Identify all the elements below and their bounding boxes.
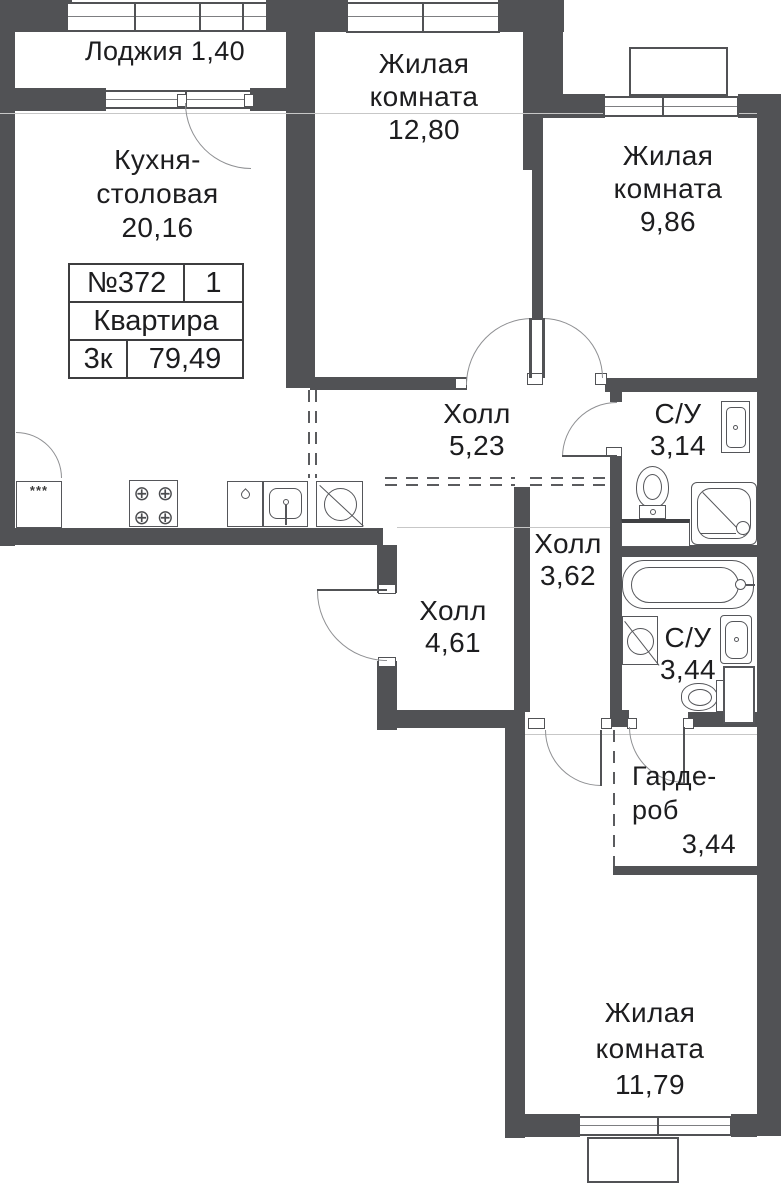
kitchen-sink (263, 481, 308, 527)
burner-icon: ⊕ (157, 481, 174, 505)
toilet-tank (639, 505, 666, 519)
door-arc (317, 591, 387, 661)
room-area: 3,62 (508, 560, 628, 592)
balcony-unit-box (629, 47, 728, 96)
door-arc (543, 318, 603, 378)
room-area: 1,40 (191, 36, 245, 66)
wall (14, 528, 383, 545)
door-arc (562, 402, 617, 457)
apartment-number: №372 (70, 265, 185, 301)
window-mullion (657, 1118, 659, 1134)
toilet (681, 683, 718, 711)
room-name: комната (578, 172, 758, 205)
wall (523, 118, 543, 170)
wall (0, 30, 15, 546)
window-glass-line (605, 106, 737, 107)
room-name: С/У (634, 622, 742, 654)
room-name: Холл (393, 595, 513, 627)
room-name: Гарде- (632, 759, 744, 793)
window (346, 2, 500, 33)
fridge-stars-icon: *** (17, 482, 61, 497)
wall (610, 390, 622, 402)
wall (14, 88, 106, 111)
window-mullion (242, 4, 244, 30)
apartment-rooms-count: 3к (70, 341, 128, 377)
fridge: *** (16, 481, 62, 528)
window-glass-line (580, 1125, 730, 1126)
apartment-info-box: №372 1 Квартира 3к 79,49 (68, 263, 244, 379)
bathroom-cabinet (621, 519, 690, 547)
room-area: 3,44 (632, 827, 744, 861)
dashed-boundary-line (308, 390, 310, 478)
toilet (636, 466, 669, 508)
room-label-wardrobe: Гарде- роб 3,44 (632, 759, 744, 861)
room-area: 12,80 (334, 113, 514, 146)
room-name: Кухня- (25, 143, 290, 177)
window-mullion (422, 4, 424, 31)
wall (525, 1114, 580, 1137)
room-name: комната (560, 1031, 740, 1067)
dashed-boundary-line (530, 484, 610, 486)
window (603, 96, 739, 117)
room-area: 4,61 (393, 627, 513, 659)
kitchen-cabinet (227, 481, 263, 527)
room-area: 3,44 (634, 654, 742, 686)
balcony-unit-box (587, 1137, 679, 1183)
room-label-hall-middle: Холл 3,62 (508, 528, 628, 592)
door-arc (16, 432, 62, 478)
door-arc (545, 730, 601, 786)
door-arc (466, 318, 532, 385)
window-glass-line (68, 16, 266, 17)
wall (613, 866, 757, 875)
apartment-section: 1 (185, 265, 242, 301)
room-name: Холл (417, 398, 537, 430)
window-mullion (134, 4, 136, 30)
door-leaf (542, 318, 545, 378)
stove: ⊕ ⊕ ⊕ ⊕ (129, 480, 178, 527)
room-name: комната (334, 80, 514, 113)
room-name: Жилая (334, 47, 514, 80)
wall (532, 168, 543, 320)
info-row-type: Квартира (70, 301, 242, 339)
room-name: Лоджия (85, 36, 183, 66)
dashed-boundary-line (385, 477, 515, 479)
door-leaf (317, 589, 387, 591)
dashed-boundary-line (530, 477, 610, 479)
wall (397, 710, 515, 728)
window (66, 2, 268, 32)
door-leaf (562, 455, 617, 457)
shower-cabin (691, 482, 757, 545)
door-jamb (528, 718, 545, 729)
room-label-kitchen: Кухня- столовая 20,16 (25, 143, 290, 245)
info-row-area: 3к 79,49 (70, 339, 242, 377)
room-name: роб (632, 793, 744, 827)
dashed-boundary-line (315, 390, 317, 478)
wall (310, 377, 467, 390)
room-label-bath-small: С/У 3,14 (622, 398, 734, 462)
room-name: Жилая (578, 139, 758, 172)
floor-plan: *** ⊕ ⊕ ⊕ ⊕ (0, 0, 781, 1184)
room-name: Жилая (560, 995, 740, 1031)
wall (514, 487, 530, 712)
burner-icon: ⊕ (133, 505, 150, 529)
room-name: столовая (25, 177, 290, 211)
wall (286, 28, 315, 388)
door-leaf (529, 318, 532, 378)
room-area: 3,14 (622, 430, 734, 462)
window-mullion (199, 4, 201, 30)
wall (523, 28, 563, 118)
wall (731, 1114, 757, 1137)
room-label-living-bottom: Жилая комната 11,79 (560, 995, 740, 1103)
water-drop-icon (239, 488, 252, 501)
burner-icon: ⊕ (133, 481, 150, 505)
door-jamb (601, 718, 612, 729)
room-area: 5,23 (417, 430, 537, 462)
apartment-type: Квартира (70, 303, 242, 339)
room-label-living-right: Жилая комната 9,86 (578, 139, 758, 238)
room-area: 11,79 (560, 1067, 740, 1103)
dashed-boundary-line (385, 484, 515, 486)
wall (563, 94, 605, 118)
room-name: Холл (508, 528, 628, 560)
room-label-bath-big: С/У 3,44 (634, 622, 742, 686)
room-name: С/У (622, 398, 734, 430)
apartment-total-area: 79,49 (128, 341, 242, 377)
info-row-number: №372 1 (70, 265, 242, 301)
wall (757, 94, 781, 1136)
wall (605, 378, 757, 392)
wall (505, 710, 525, 1138)
washing-machine (316, 481, 363, 527)
bathtub (622, 560, 754, 609)
room-label-loggia: Лоджия 1,40 (60, 36, 270, 67)
room-label-hall-main: Холл 5,23 (417, 398, 537, 462)
window-mullion (662, 98, 664, 115)
wall (0, 0, 72, 32)
dashed-boundary-line (613, 730, 615, 866)
window (578, 1116, 732, 1136)
room-label-living-top: Жилая комната 12,80 (334, 47, 514, 146)
door-leaf (600, 730, 602, 786)
room-area: 9,86 (578, 205, 758, 238)
room-label-hall-lower: Холл 4,61 (393, 595, 513, 659)
stove-burners-icon: ⊕ ⊕ ⊕ ⊕ (130, 481, 177, 526)
burner-icon: ⊕ (157, 505, 174, 529)
wall (377, 661, 397, 730)
wall (250, 88, 290, 111)
room-area: 20,16 (25, 211, 290, 245)
